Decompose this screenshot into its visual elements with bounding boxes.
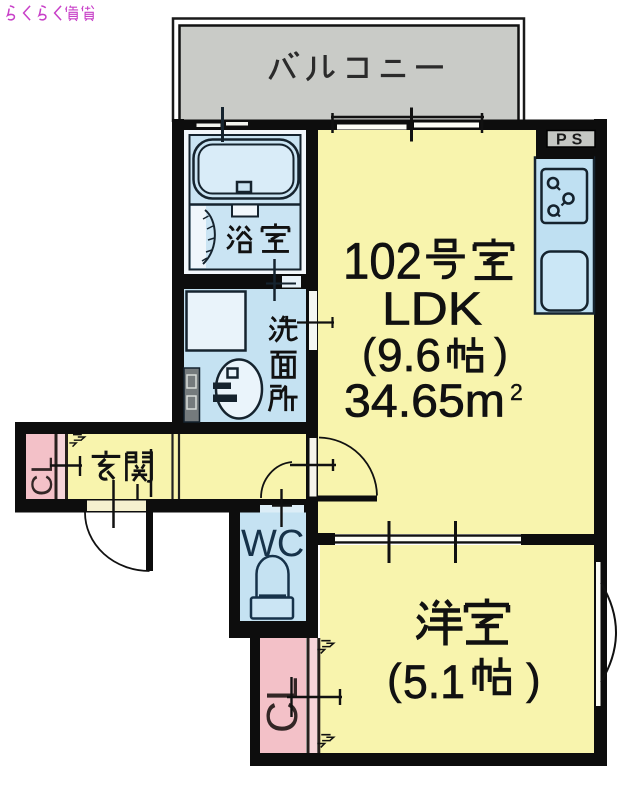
svg-text:2: 2: [510, 379, 523, 405]
svg-text:9.6: 9.6: [377, 329, 441, 381]
svg-text:): ): [526, 655, 541, 704]
svg-text:(: (: [362, 330, 376, 377]
svg-text:PS: PS: [556, 132, 587, 149]
svg-text:CL: CL: [26, 456, 59, 496]
svg-text:(: (: [387, 655, 402, 704]
svg-text:): ): [494, 330, 508, 377]
svg-text:5.1: 5.1: [403, 655, 465, 708]
svg-text:CL: CL: [258, 677, 307, 733]
svg-text:102: 102: [343, 233, 422, 290]
svg-text:WC: WC: [241, 523, 304, 565]
svg-text:LDK: LDK: [382, 283, 482, 335]
svg-text:34.65m: 34.65m: [344, 375, 505, 427]
